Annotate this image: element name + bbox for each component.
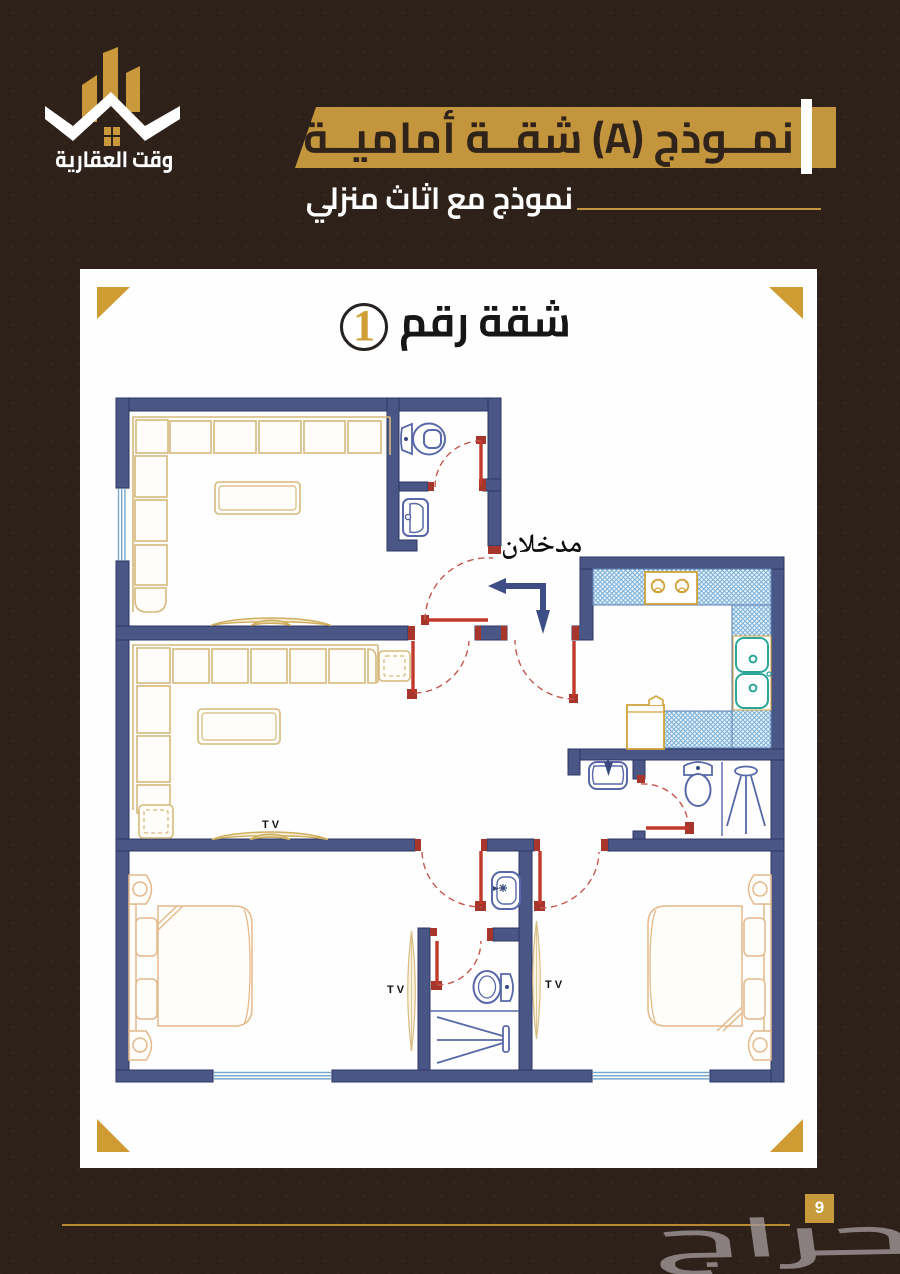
svg-text:TV: TV <box>545 979 565 991</box>
svg-text:TV: TV <box>262 819 282 831</box>
svg-text:TV: TV <box>387 984 407 996</box>
